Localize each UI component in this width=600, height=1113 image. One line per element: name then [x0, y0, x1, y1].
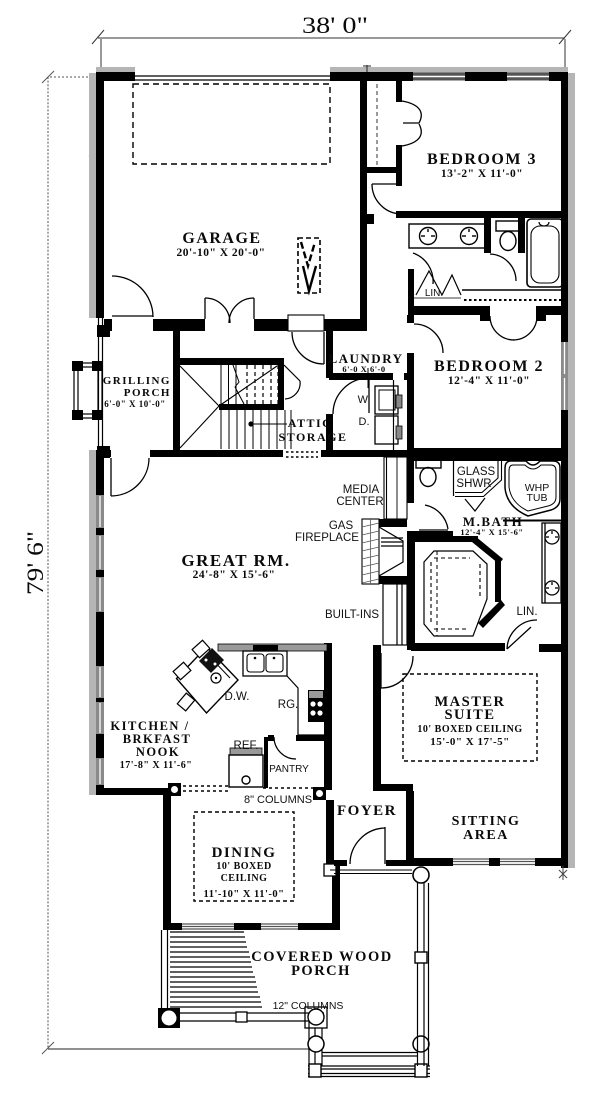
- svg-text:CEILING: CEILING: [221, 873, 268, 884]
- svg-text:NOOK: NOOK: [136, 745, 180, 759]
- svg-text:15'-0" X 17'-5": 15'-0" X 17'-5": [430, 736, 510, 748]
- svg-text:GAS: GAS: [329, 520, 354, 532]
- svg-text:GLASS: GLASS: [457, 466, 496, 478]
- svg-text:SITTING: SITTING: [452, 814, 521, 829]
- svg-text:CENTER: CENTER: [336, 496, 383, 508]
- svg-text:6'-0" X 10'-0": 6'-0" X 10'-0": [104, 399, 166, 409]
- svg-text:STORAGE: STORAGE: [279, 430, 348, 444]
- svg-text:ATTIC: ATTIC: [288, 416, 333, 430]
- svg-text:12'-4" X 11'-0": 12'-4" X 11'-0": [448, 375, 530, 387]
- svg-text:79' 6": 79' 6": [23, 531, 48, 595]
- svg-text:KITCHEN /: KITCHEN /: [110, 719, 189, 733]
- svg-text:BRKFAST: BRKFAST: [123, 732, 192, 746]
- svg-text:38' 0": 38' 0": [302, 13, 368, 38]
- svg-text:11'-10" X 11'-0": 11'-10" X 11'-0": [204, 889, 285, 900]
- svg-text:PORCH: PORCH: [124, 387, 171, 399]
- svg-text:LIN.: LIN.: [516, 606, 537, 618]
- svg-text:REF.: REF.: [234, 740, 259, 752]
- svg-text:10' BOXED CEILING: 10' BOXED CEILING: [417, 724, 522, 735]
- svg-text:TUB: TUB: [527, 492, 548, 504]
- svg-text:FIREPLACE: FIREPLACE: [295, 532, 359, 544]
- svg-text:17'-8" X 11'-6": 17'-8" X 11'-6": [120, 760, 193, 771]
- svg-text:10' BOXED: 10' BOXED: [216, 861, 271, 872]
- svg-text:W.: W.: [358, 394, 371, 406]
- svg-text:12" COLUMNS: 12" COLUMNS: [273, 1000, 344, 1012]
- svg-text:12'-4" X 15'-6": 12'-4" X 15'-6": [460, 527, 523, 537]
- svg-text:D.: D.: [359, 416, 370, 428]
- svg-text:PORCH: PORCH: [291, 963, 351, 979]
- svg-text:20'-10" X 20'-0": 20'-10" X 20'-0": [176, 247, 265, 259]
- svg-text:AREA: AREA: [463, 828, 509, 843]
- svg-text:FOYER: FOYER: [337, 803, 397, 819]
- svg-text:8" COLUMNS: 8" COLUMNS: [244, 794, 312, 806]
- svg-text:13'-2" X 11'-0": 13'-2" X 11'-0": [441, 168, 523, 180]
- svg-text:SUITE: SUITE: [444, 707, 495, 723]
- svg-text:MEDIA: MEDIA: [343, 484, 380, 496]
- svg-text:PANTRY: PANTRY: [269, 764, 309, 775]
- svg-text:GRILLING: GRILLING: [103, 375, 171, 387]
- svg-text:DINING: DINING: [212, 845, 277, 861]
- svg-text:SHWR: SHWR: [456, 478, 491, 490]
- svg-text:GARAGE: GARAGE: [182, 230, 261, 247]
- svg-text:LIN.: LIN.: [425, 288, 443, 299]
- svg-text:BEDROOM 3: BEDROOM 3: [427, 151, 537, 168]
- svg-text:RG.: RG.: [278, 699, 298, 711]
- svg-text:GREAT RM.: GREAT RM.: [181, 551, 290, 570]
- svg-text:BUILT-INS: BUILT-INS: [325, 609, 379, 621]
- svg-text:D.W.: D.W.: [225, 691, 250, 703]
- svg-text:24'-8" X 15'-6": 24'-8" X 15'-6": [193, 569, 276, 581]
- svg-text:6'-0 X 6'-0: 6'-0 X 6'-0: [342, 364, 385, 374]
- svg-text:BEDROOM 2: BEDROOM 2: [434, 358, 544, 375]
